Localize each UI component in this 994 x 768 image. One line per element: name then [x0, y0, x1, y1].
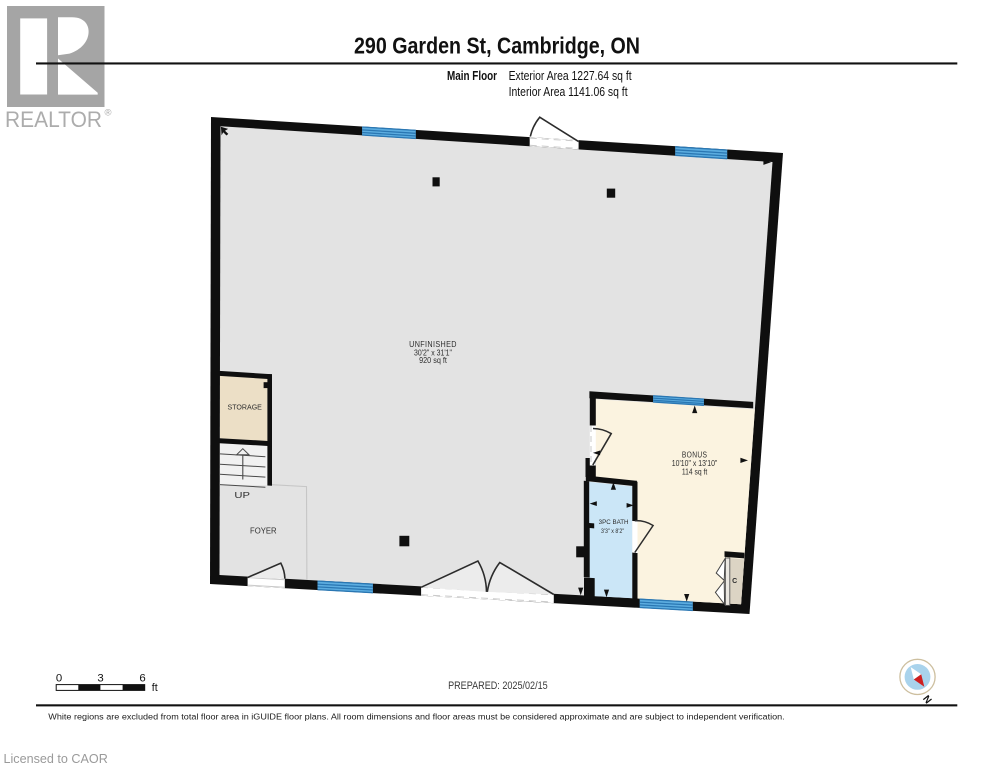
svg-text:STORAGE: STORAGE [228, 403, 262, 412]
svg-text:FOYER: FOYER [250, 525, 277, 535]
svg-text:0: 0 [56, 673, 62, 685]
svg-text:114 sq ft: 114 sq ft [682, 468, 708, 477]
svg-text:290 Garden St, Cambridge, ON: 290 Garden St, Cambridge, ON [354, 33, 640, 59]
svg-text:Interior Area 1141.06 sq ft: Interior Area 1141.06 sq ft [509, 85, 628, 99]
svg-text:REALTOR: REALTOR [5, 107, 102, 132]
svg-text:PREPARED: 2025/02/15: PREPARED: 2025/02/15 [448, 680, 548, 692]
svg-text:White regions are excluded fro: White regions are excluded from total fl… [48, 712, 784, 722]
svg-text:Main Floor: Main Floor [447, 69, 497, 83]
svg-text:6: 6 [139, 673, 145, 685]
svg-text:®: ® [105, 108, 112, 119]
svg-text:Exterior Area 1227.64 sq ft: Exterior Area 1227.64 sq ft [509, 69, 632, 83]
svg-text:3PC BATH: 3PC BATH [599, 519, 629, 526]
svg-text:3: 3 [97, 673, 103, 685]
svg-text:C: C [732, 578, 737, 585]
svg-text:ft: ft [152, 682, 158, 694]
svg-text:920 sq ft: 920 sq ft [419, 356, 448, 365]
svg-text:UP: UP [234, 490, 250, 500]
svg-text:Licensed to CAOR: Licensed to CAOR [4, 752, 108, 766]
svg-text:3'3" x 8'2": 3'3" x 8'2" [601, 528, 625, 535]
